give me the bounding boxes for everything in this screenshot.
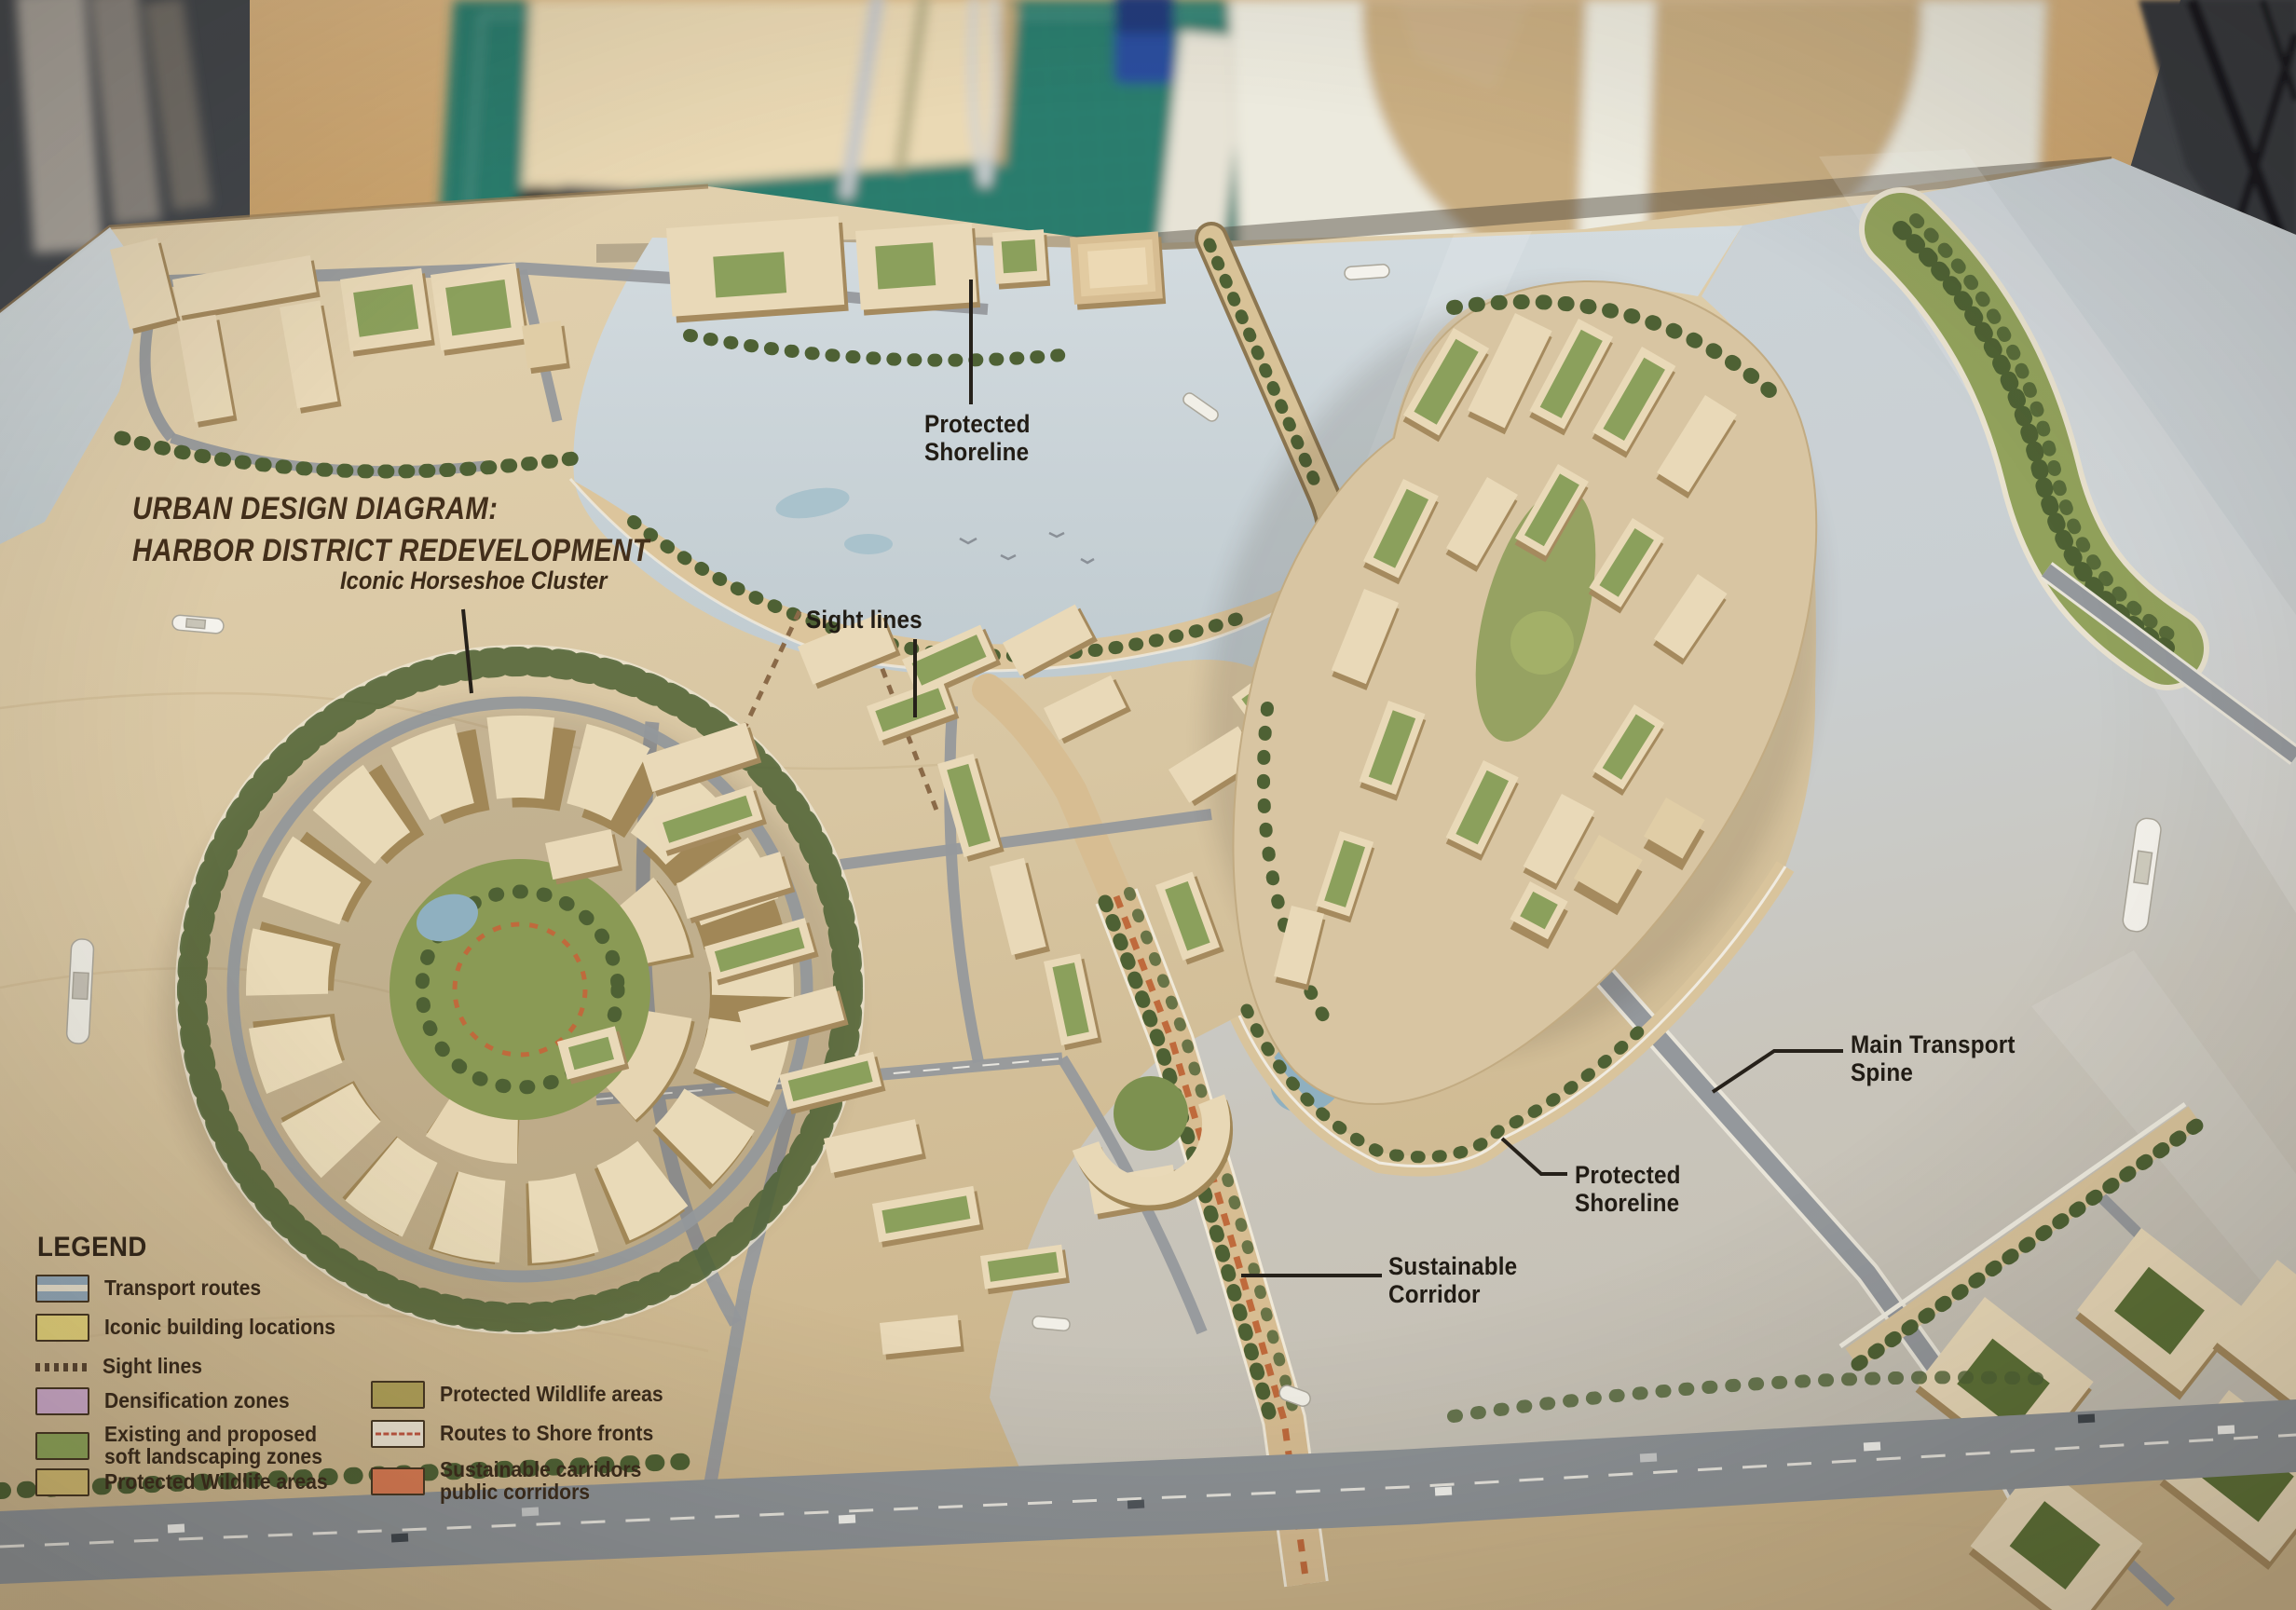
- legend-swatch-densification: [35, 1387, 89, 1415]
- legend-item-transport-routes: Transport routes: [35, 1275, 275, 1303]
- label-sustainable-corridor: Sustainable Corridor: [1388, 1252, 1517, 1308]
- blue-eraser: [1114, 0, 1174, 84]
- legend-heading: LEGEND: [37, 1232, 147, 1263]
- model-scene: .b .s{fill:#a58a5e}.b .t{fill:#e9d9b8}.b…: [0, 0, 2296, 1610]
- legend-item-wildlife-right: Protected Wildlife areas: [371, 1381, 683, 1409]
- label-main-transport-spine: Main Transport Spine: [1851, 1030, 2016, 1086]
- legend-swatch-landscaping: [35, 1432, 89, 1460]
- legend-item-soft-landscaping: Existing and proposed soft landscaping z…: [35, 1424, 341, 1468]
- label-protected-shoreline-right: Protected Shoreline: [1575, 1161, 1681, 1217]
- legend-item-routes-to-shore: Routes to Shore fronts: [371, 1420, 672, 1448]
- label-protected-shoreline-top: Protected Shoreline: [924, 410, 1031, 466]
- legend-swatch-iconic: [35, 1314, 89, 1342]
- legend-item-iconic-buildings: Iconic building locations: [35, 1314, 356, 1342]
- photo-of-urban-design-model: .b .s{fill:#a58a5e}.b .t{fill:#e9d9b8}.b…: [0, 0, 2296, 1610]
- legend-swatch-sight-lines: [35, 1363, 88, 1371]
- diagram-title: URBAN DESIGN DIAGRAM: HARBOR DISTRICT RE…: [132, 488, 649, 572]
- title-line-1: URBAN DESIGN DIAGRAM:: [132, 488, 649, 530]
- legend-swatch-wildlife-right: [371, 1381, 425, 1409]
- legend-swatch-sustainable: [371, 1467, 425, 1495]
- legend-item-sight-lines: Sight lines: [35, 1353, 211, 1381]
- legend-swatch-transport: [35, 1275, 89, 1303]
- legend-swatch-wildlife-left: [35, 1468, 89, 1496]
- legend-item-densification: Densification zones: [35, 1387, 306, 1415]
- legend-swatch-routes: [371, 1420, 425, 1448]
- legend-item-sustainable-corridors: Sustainable carridors public corridors: [371, 1459, 659, 1504]
- label-sight-lines: Sight lines: [806, 606, 922, 634]
- label-iconic-horseshoe-cluster: Iconic Horseshoe Cluster: [340, 566, 608, 595]
- legend-item-wildlife-left: Protected Wildlife areas: [35, 1468, 348, 1496]
